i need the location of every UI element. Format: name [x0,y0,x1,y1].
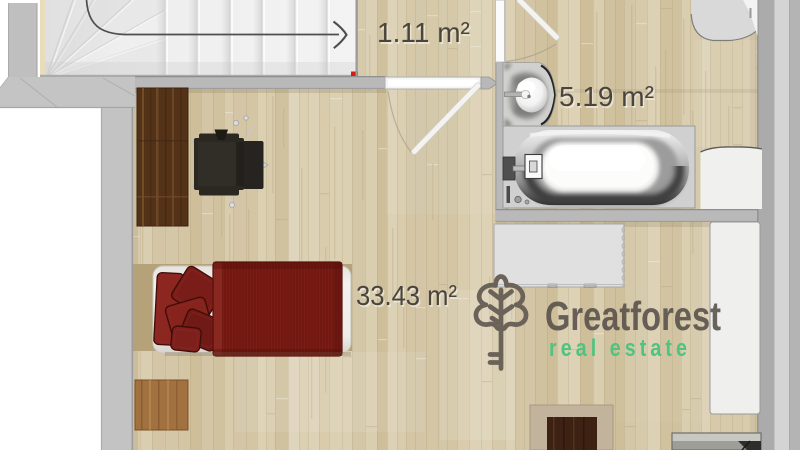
svg-text:5.19 m²: 5.19 m² [559,81,654,112]
svg-text:33.43 m²: 33.43 m² [356,280,457,311]
svg-text:real estate: real estate [549,335,691,362]
svg-text:1.11 m²: 1.11 m² [377,17,470,48]
svg-text:Greatforest: Greatforest [545,293,721,339]
